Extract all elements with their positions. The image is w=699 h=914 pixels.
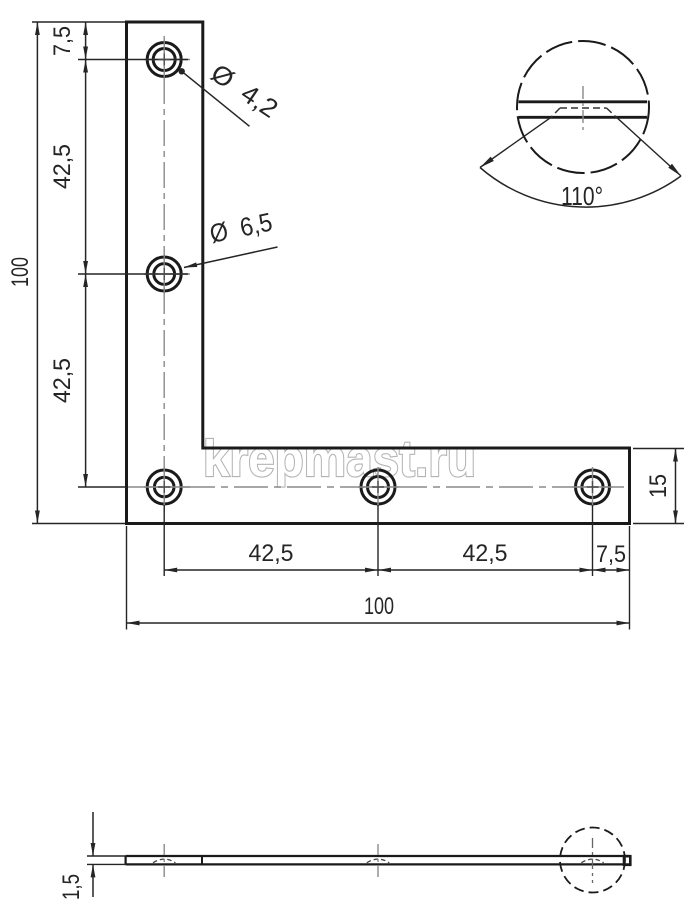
svg-text:42,5: 42,5 <box>49 358 76 403</box>
svg-text:42,5: 42,5 <box>463 540 508 567</box>
svg-text:krepmast.ru: krepmast.ru <box>203 430 476 487</box>
svg-text:42,5: 42,5 <box>249 540 294 567</box>
svg-text:7,5: 7,5 <box>596 541 626 568</box>
svg-text:42,5: 42,5 <box>49 144 76 189</box>
svg-text:7,5: 7,5 <box>49 26 76 56</box>
svg-text:1,5: 1,5 <box>58 874 85 900</box>
svg-text:100: 100 <box>364 593 394 620</box>
svg-text:100: 100 <box>7 257 34 287</box>
svg-text:15: 15 <box>645 474 672 498</box>
svg-text:110°: 110° <box>561 181 603 211</box>
